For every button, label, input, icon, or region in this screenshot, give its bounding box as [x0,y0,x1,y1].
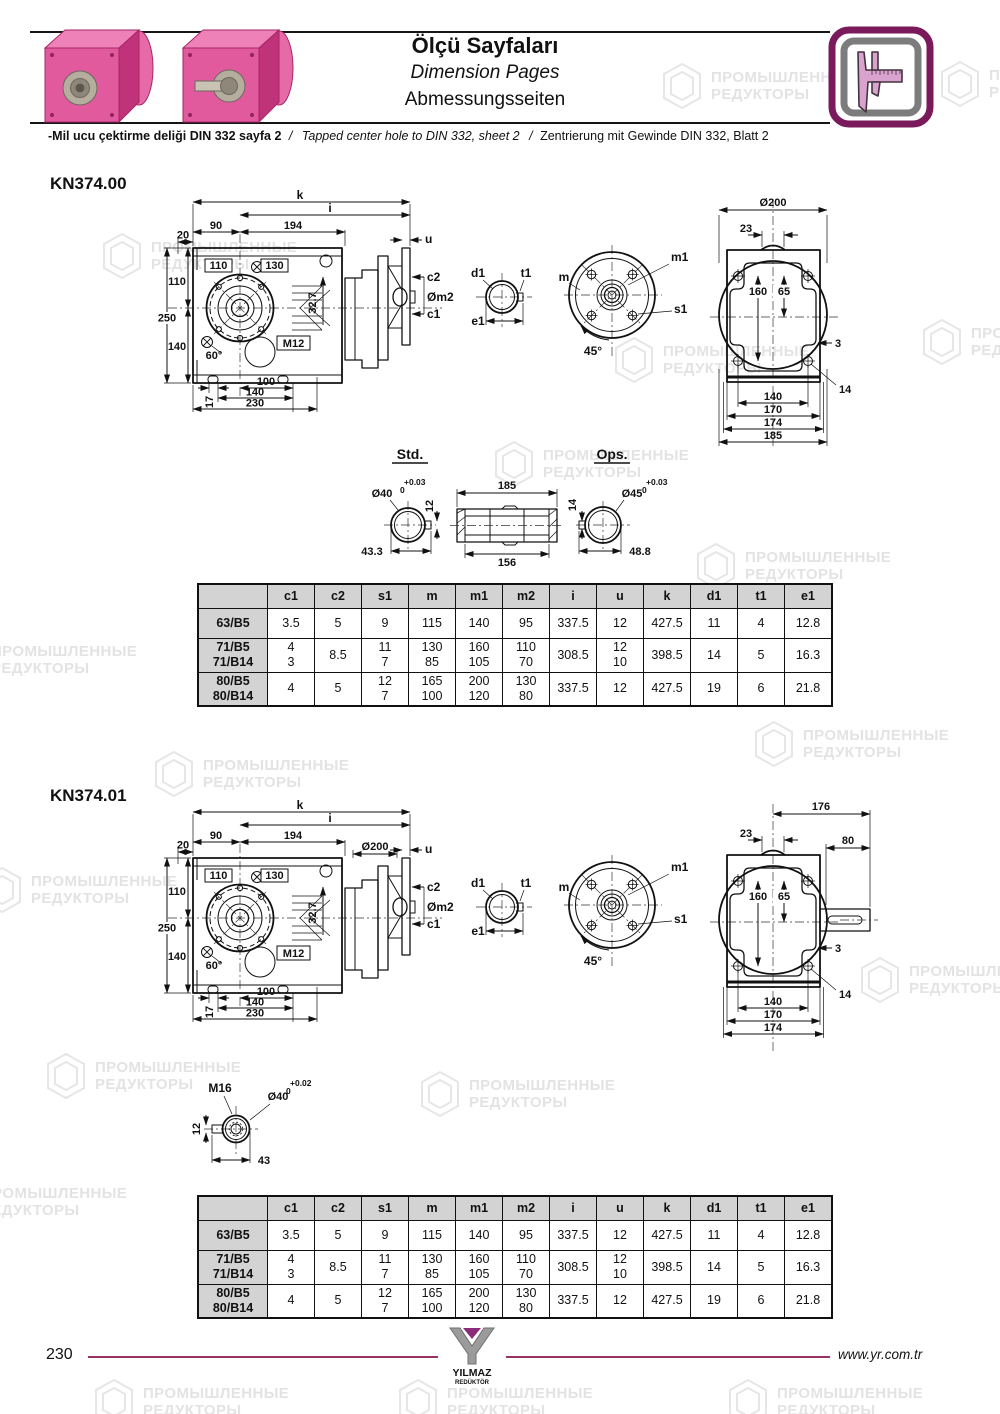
dim-m1: m1 [671,250,689,264]
tol-bot: 0 [286,1086,291,1096]
dim-23: 23 [740,223,752,235]
col-header-d1: d1 [691,584,738,608]
dim-130-bolt: 130 [265,260,283,272]
table-row: 80/B580/B144512716510020012013080337.512… [198,1284,832,1318]
dim-value-cell: 127 [362,1284,409,1318]
dim-110-left: 110 [168,276,186,288]
dim-c2: c2 [427,270,441,284]
page-number: 230 [46,1346,73,1364]
dim-value-cell: 11 [691,1220,738,1250]
dim-90: 90 [210,220,222,232]
dim-value-cell: 95 [503,1220,550,1250]
hexagon-swirl-icon [660,62,704,110]
note-separator: / [289,129,292,143]
kn374-00-rear-view: 23 160 65 3 14 140 170 174 Ø200 185 [690,185,990,455]
dim-160: 160 [749,286,767,298]
col-header-c1: c1 [268,1196,315,1220]
note-turkish: -Mil ucu çektirme deliği DIN 332 sayfa 2 [48,129,281,143]
dim-value-cell: 21.8 [785,1284,833,1318]
title-turkish: Ölçü Sayfaları [320,33,650,59]
watermark: ПРОМЫШЛЕННЫЕРЕДУКТОРЫ [418,1070,615,1118]
dim-230: 230 [246,398,264,410]
dim-value-cell: 160105 [456,638,503,672]
table-row: 71/B571/B14438.51171308516010511070308.5… [198,1250,832,1284]
dim-45deg: 45° [584,344,602,358]
std-tol-bot: 0 [400,485,405,495]
dim-value-cell: 165100 [409,672,456,706]
sleeve-inner-length: 156 [498,557,516,569]
dim-t1: t1 [521,266,532,280]
dim-value-cell: 5 [315,672,362,706]
dim-value-cell: 398.5 [644,1250,691,1284]
gearbox-rear-view-drawing: 23 160 65 3 14 140 170 174 [710,199,852,449]
dim-value-cell: 4 [738,608,785,638]
note-separator: / [529,129,532,143]
dim-value-cell: 16.3 [785,638,833,672]
logo-name: YILMAZ [452,1367,492,1379]
dim-m: m [559,270,570,284]
dim-value-cell: 3.5 [268,1220,315,1250]
col-header-i: i [550,1196,597,1220]
dim-185: 185 [764,430,782,442]
dim-value-cell: 200120 [456,672,503,706]
col-header-c2: c2 [315,1196,362,1220]
solid-shaft-end-detail: M16 12 Ø40 +0.02 0 43 [150,1058,370,1178]
dim-value-cell: 13080 [503,1284,550,1318]
watermark: ПРОМЫШЛЕННЫЕРЕДУКТОРЫ [726,1378,923,1414]
dim-i: i [328,201,331,215]
watermark: ПРОМЫШЛЕННЫЕРЕДУКТОРЫ [0,1178,127,1226]
dim-value-cell: 5 [315,1220,362,1250]
dim-value-cell: 427.5 [644,1220,691,1250]
dim-d1: d1 [471,266,485,280]
dim-o200-side: Ø200 [362,841,389,853]
dim-value-cell: 9 [362,608,409,638]
dim-value-cell: 427.5 [644,608,691,638]
dim-value-cell: 14 [691,1250,738,1284]
dim-value-cell: 43 [268,638,315,672]
dim-value-cell: 8.5 [315,638,362,672]
dim-value-cell: 200120 [456,1284,503,1318]
dim-value-cell: 12 [597,1284,644,1318]
dim-value-cell: 127 [362,672,409,706]
dim-176: 176 [812,801,830,813]
dim-value-cell: 19 [691,672,738,706]
dim-17: 17 [204,396,216,408]
col-header-s1: s1 [362,1196,409,1220]
corner-cell [198,1196,268,1220]
std-keyway: 12 [424,500,436,512]
dim-value-cell: 115 [409,1220,456,1250]
dim-value-cell: 21.8 [785,672,833,706]
dim-value-cell: 12 [597,1220,644,1250]
sleeve-length: 185 [498,480,516,492]
dim-value-cell: 337.5 [550,608,597,638]
ops-label: Ops. [596,446,627,462]
col-header-m1: m1 [456,584,503,608]
dim-140-left: 140 [168,341,186,353]
dim-value-cell: 337.5 [550,1220,597,1250]
dim-u: u [425,232,432,246]
std-length: 43.3 [361,546,382,558]
gearbox-photo-left [45,30,153,122]
dim-value-cell: 13085 [409,1250,456,1284]
dim-k: k [297,188,304,202]
kn374-00-detail-views: d1 t1 e1 m m1 s1 45° [460,233,710,393]
col-header-u: u [597,584,644,608]
note-english: Tapped center hole to DIN 332, sheet 2 [302,129,520,143]
ops-keyway: 14 [567,498,579,511]
col-header-m2: m2 [503,584,550,608]
dim-value-cell: 19 [691,1284,738,1318]
title-german: Abmessungsseiten [320,86,650,113]
watermark: ПРОМЫШЛЕННЫЕРЕДУКТОРЫ [0,636,137,684]
dimension-table-kn374-00: c1c2s1mm1m2iukd1t1e163/B53.5591151409533… [197,583,833,707]
dim-value-cell: 308.5 [550,1250,597,1284]
dim-value-cell: 6 [738,1284,785,1318]
watermark: ПРОМЫШЛЕННЫЕРЕДУКТОРЫ [92,1378,289,1414]
row-label: 71/B571/B14 [198,638,268,672]
table-row: 71/B571/B14438.51171308516010511070308.5… [198,638,832,672]
dim-value-cell: 95 [503,608,550,638]
dim-m16: M16 [208,1081,232,1095]
ops-tol-bot: 0 [642,485,647,495]
std-label: Std. [397,446,423,462]
dim-value-cell: 13085 [409,638,456,672]
dim-value-cell: 43 [268,1250,315,1284]
dim-12: 12 [191,1123,203,1135]
dim-value-cell: 140 [456,608,503,638]
dim-194: 194 [284,220,303,232]
dim-value-cell: 12 [597,672,644,706]
gearbox-side-view-drawing: 110 130 M12 60° k i 90 194 20 u c2 Øm2 c… [156,188,454,412]
gearbox-photo-right [183,30,293,122]
footer-rule-right [506,1356,830,1358]
col-header-i: i [550,584,597,608]
dim-value-cell: 337.5 [550,672,597,706]
catalog-page: ПРОМЫШЛЕННЫЕРЕДУКТОРЫ ПРОМЫШЛЕННЫЕРЕДУКТ… [0,0,1000,1414]
dim-value-cell: 308.5 [550,638,597,672]
caliper-icon [828,26,934,128]
dim-s1: s1 [674,302,688,316]
dim-value-cell: 12 [597,608,644,638]
dim-3: 3 [835,338,841,350]
ops-tol-top: +0.03 [646,477,668,487]
dim-value-cell: 160105 [456,1250,503,1284]
watermark: ПРОМЫШЛЕННЫЕРЕДУКТОРЫ [938,60,1000,108]
dim-value-cell: 4 [268,1284,315,1318]
dim-value-cell: 3.5 [268,608,315,638]
dim-value-cell: 1210 [597,1250,644,1284]
website-url: www.yr.com.tr [838,1347,922,1362]
dim-value-cell: 14 [691,638,738,672]
dim-value-cell: 13080 [503,672,550,706]
col-header-c2: c2 [315,584,362,608]
dim-110-bolt: 110 [210,260,228,272]
row-label: 80/B580/B14 [198,1284,268,1318]
kn374-01-side-view: Ø200 [150,800,470,1060]
col-header-m1: m1 [456,1196,503,1220]
model-title-kn374-00: KN374.00 [50,174,127,194]
dim-65: 65 [778,286,790,298]
note-german: Zentrierung mit Gewinde DIN 332, Blatt 2 [540,129,769,143]
dimension-table-kn374-01: c1c2s1mm1m2iukd1t1e163/B53.5591151409533… [197,1195,833,1319]
title-english: Dimension Pages [320,59,650,86]
col-header-k: k [644,1196,691,1220]
dim-43: 43 [258,1155,270,1167]
table-row: 63/B53.55911514095337.512427.511412.8 [198,608,832,638]
dim-c1: c1 [427,307,441,321]
dim-value-cell: 427.5 [644,672,691,706]
yilmaz-logo: YILMAZ REDÜKTÖR [444,1326,500,1386]
dim-250: 250 [158,313,176,325]
col-header-c1: c1 [268,584,315,608]
dim-value-cell: 427.5 [644,1284,691,1318]
col-header-m2: m2 [503,1196,550,1220]
row-label: 80/B580/B14 [198,672,268,706]
dim-value-cell: 11070 [503,638,550,672]
col-header-m: m [409,584,456,608]
dim-value-cell: 398.5 [644,638,691,672]
dim-value-cell: 140 [456,1220,503,1250]
dim-m12: M12 [283,338,304,350]
watermark: ПРОМЫШЛЕННЫЕРЕДУКТОРЫ [752,720,949,768]
dim-value-cell: 337.5 [550,1284,597,1318]
model-title-kn374-01: KN374.01 [50,786,127,806]
col-header-k: k [644,584,691,608]
page-title: Ölçü Sayfaları Dimension Pages Abmessung… [320,33,650,113]
col-header-e1: e1 [785,584,833,608]
dim-value-cell: 4 [268,672,315,706]
dim-value-cell: 115 [409,608,456,638]
dim-o200: Ø200 [760,197,787,209]
dim-value-cell: 8.5 [315,1250,362,1284]
dim-value-cell: 9 [362,1220,409,1250]
dim-170: 170 [764,404,782,416]
col-header-d1: d1 [691,1196,738,1220]
kn374-00-side-view: 110 130 M12 60° k i 90 194 20 u c2 Øm2 c… [150,190,470,450]
col-header-m: m [409,1196,456,1220]
dim-20: 20 [177,230,189,242]
dim-om2: Øm2 [427,290,454,304]
tol-top: +0.02 [290,1078,312,1088]
dim-value-cell: 5 [315,608,362,638]
dim-value-cell: 5 [315,1284,362,1318]
col-header-t1: t1 [738,1196,785,1220]
dim-value-cell: 11 [691,608,738,638]
dim-14: 14 [839,384,852,396]
dim-e1: e1 [471,314,485,328]
ops-length: 48.8 [629,546,650,558]
footer-rule-left [88,1356,438,1358]
dim-value-cell: 11070 [503,1250,550,1284]
dim-value-cell: 165100 [409,1284,456,1318]
gearbox-photos [35,14,301,130]
logo-subtitle: REDÜKTÖR [455,1379,490,1386]
dim-80: 80 [842,835,854,847]
watermark: ПРОМЫШЛЕННЫЕРЕДУКТОРЫ [152,750,349,798]
dim-value-cell: 5 [738,638,785,672]
dim-value-cell: 16.3 [785,1250,833,1284]
row-label: 63/B5 [198,608,268,638]
kn374-01-rear-view: 176 80 [690,790,990,1060]
row-label: 63/B5 [198,1220,268,1250]
shaft-and-flange-views: d1 t1 e1 m m1 s1 45° [471,245,689,359]
dim-value-cell: 1210 [597,638,644,672]
corner-cell [198,584,268,608]
table-row: 80/B580/B144512716510020012013080337.512… [198,672,832,706]
std-ops-shaft-details: Std. Ops. Ø40 +0.03 0 12 43.3 185 156 14… [340,443,690,573]
dim-value-cell: 12.8 [785,608,833,638]
col-header-u: u [597,1196,644,1220]
col-header-s1: s1 [362,584,409,608]
row-label: 71/B571/B14 [198,1250,268,1284]
dim-value-cell: 4 [738,1220,785,1250]
dim-value-cell: 117 [362,1250,409,1284]
dim-value-cell: 117 [362,638,409,672]
dim-value-cell: 12.8 [785,1220,833,1250]
std-bore-dia: Ø40 [372,488,393,500]
ops-bore-dia: Ø45 [622,488,643,500]
din-note: -Mil ucu çektirme deliği DIN 332 sayfa 2… [48,129,769,143]
std-tol-top: +0.03 [404,477,426,487]
col-header-e1: e1 [785,1196,833,1220]
dim-value-cell: 6 [738,672,785,706]
kn374-01-detail-views [460,843,710,1003]
dim-174: 174 [764,417,783,429]
dim-value-cell: 5 [738,1250,785,1284]
yilmaz-y-icon [450,1328,494,1364]
dim-140: 140 [764,391,782,403]
table-row: 63/B53.55911514095337.512427.511412.8 [198,1220,832,1250]
col-header-t1: t1 [738,584,785,608]
dim-32-7: 32.7 [307,292,319,313]
